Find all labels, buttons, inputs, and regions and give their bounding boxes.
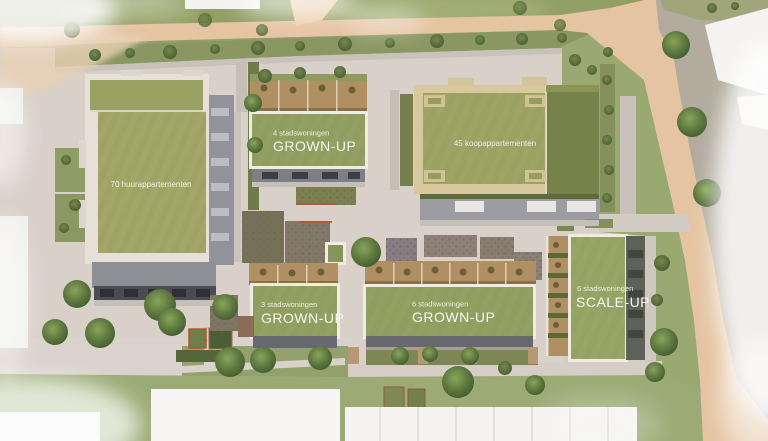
svg-text:6 stadswoningen: 6 stadswoningen <box>577 284 633 293</box>
svg-text:SCALE-UP: SCALE-UP <box>576 294 650 310</box>
svg-text:GROWN-UP: GROWN-UP <box>412 309 495 325</box>
svg-text:45 koopappartementen: 45 koopappartementen <box>454 139 536 148</box>
svg-text:3 stadswoningen: 3 stadswoningen <box>261 300 317 309</box>
svg-text:GROWN-UP: GROWN-UP <box>273 138 356 154</box>
svg-text:GROWN-UP: GROWN-UP <box>261 310 344 326</box>
svg-text:6 stadswoningen: 6 stadswoningen <box>412 300 468 309</box>
svg-text:70 huurappartementen: 70 huurappartementen <box>111 180 192 189</box>
svg-text:4 stadswoningen: 4 stadswoningen <box>273 129 329 138</box>
